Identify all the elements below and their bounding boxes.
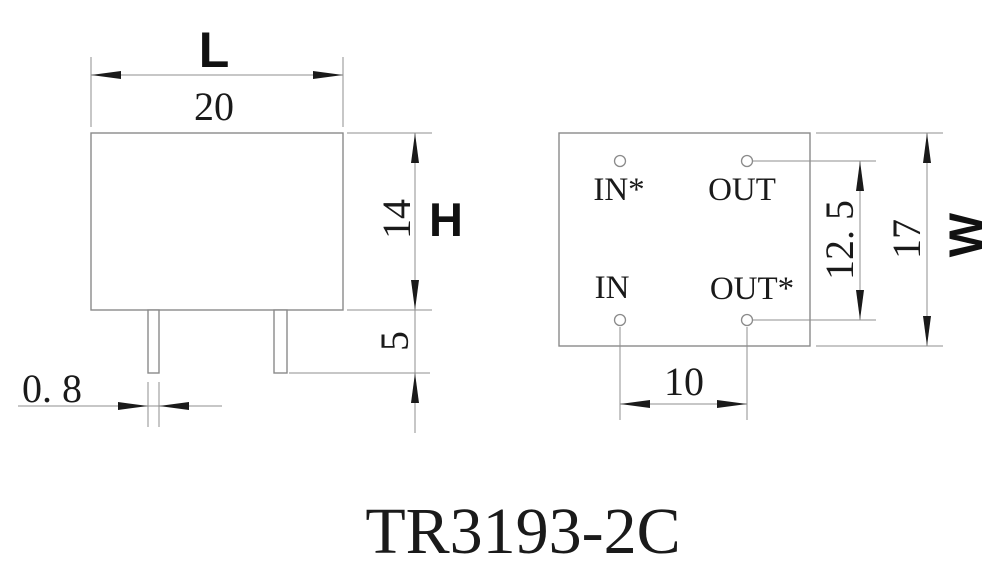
drawing-canvas: L 20 14 H 5 <box>0 0 1000 574</box>
arrowhead-down <box>923 316 931 346</box>
arrowhead-right <box>118 402 148 410</box>
front-right-pin <box>274 310 287 373</box>
dim-width-symbol: W <box>939 212 992 257</box>
dim-hole-span-value: 12. 5 <box>817 200 862 280</box>
arrowhead-up <box>856 161 864 191</box>
pin-label-in: IN <box>595 270 630 306</box>
part-number: TR3193-2C <box>365 495 680 568</box>
arrowhead-right <box>313 71 343 79</box>
front-left-pin <box>148 310 159 373</box>
pin-label-out-star: OUT* <box>710 271 794 307</box>
dim-pin-length-value: 5 <box>372 331 417 351</box>
dim-pin-pitch-value: 10 <box>664 359 704 404</box>
dim-length-symbol: L <box>199 22 230 78</box>
arrowhead-up <box>411 373 419 403</box>
dim-length: L 20 <box>91 22 343 129</box>
arrowhead-left <box>159 402 189 410</box>
arrowhead-up <box>923 133 931 163</box>
pin-hole-top-right <box>742 156 753 167</box>
arrowhead-down <box>411 280 419 310</box>
dim-length-value: 20 <box>194 84 234 129</box>
bottom-view-body <box>559 133 810 346</box>
front-view: L 20 14 H 5 <box>18 22 463 433</box>
pin-label-out: OUT <box>708 172 776 208</box>
arrowhead-left <box>91 71 121 79</box>
arrowhead-up <box>411 133 419 163</box>
dim-pin-width: 0. 8 <box>18 366 222 427</box>
pin-label-in-star: IN* <box>593 172 644 208</box>
arrowhead-right <box>717 400 747 408</box>
front-view-body <box>91 133 343 310</box>
dim-pin-width-value: 0. 8 <box>22 366 82 411</box>
dim-width-value: 17 <box>884 219 929 259</box>
dim-height-value: 14 <box>374 199 419 239</box>
pin-hole-top-left <box>615 156 626 167</box>
dim-height-symbol: H <box>429 193 463 246</box>
pin-hole-bottom-right <box>742 315 753 326</box>
arrowhead-left <box>620 400 650 408</box>
dimension-drawing: L 20 14 H 5 <box>0 0 1000 574</box>
arrowhead-down <box>856 290 864 320</box>
bottom-view: IN* OUT IN OUT* 12. 5 17 W <box>559 133 992 420</box>
pin-hole-bottom-left <box>615 315 626 326</box>
